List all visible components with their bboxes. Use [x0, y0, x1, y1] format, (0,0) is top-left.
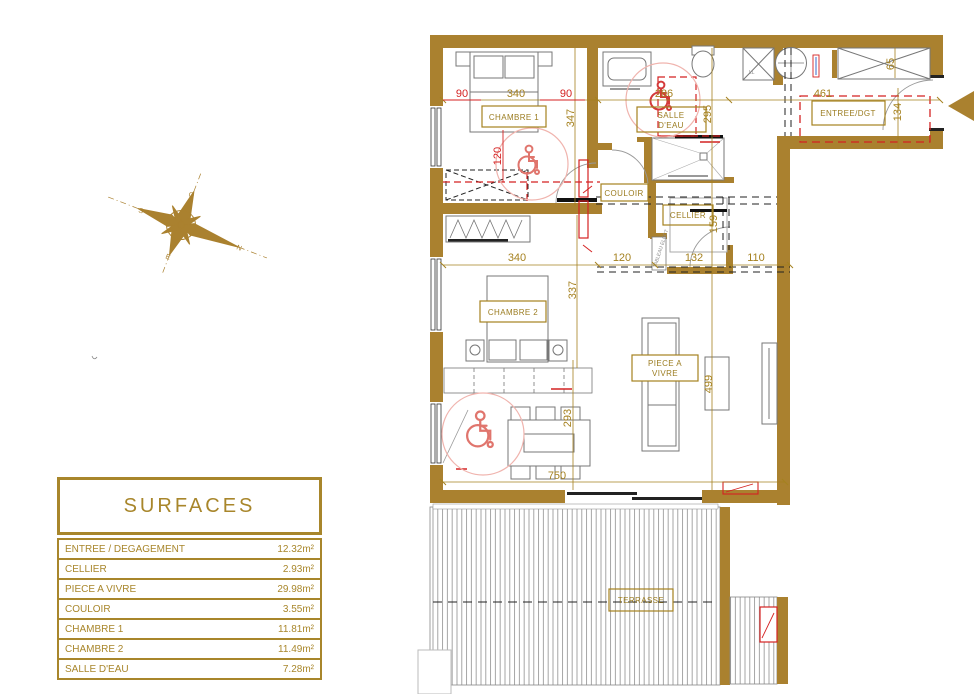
svg-text:COULOIR: COULOIR	[604, 189, 643, 198]
svg-text:461: 461	[814, 88, 832, 100]
svg-text:D'EAU: D'EAU	[658, 121, 684, 130]
compass-rose-icon: N S O E	[90, 145, 287, 307]
surfaces-table: SURFACES ENTREE / DEGAGEMENT 12.32m² CEL…	[57, 477, 322, 680]
table-row: SALLE D'EAU 7.28m²	[57, 658, 322, 680]
floor-plan-page: TERRASSE	[0, 0, 980, 694]
svg-text:90: 90	[456, 88, 468, 100]
label-chambre1: CHAMBRE 1	[482, 106, 546, 127]
svg-text:159: 159	[708, 215, 720, 233]
stray-mark	[92, 356, 97, 359]
svg-text:CHAMBRE 1: CHAMBRE 1	[489, 113, 539, 122]
svg-text:CELLIER: CELLIER	[670, 211, 706, 220]
table-row: PIECE A VIVRE 29.98m²	[57, 578, 322, 600]
svg-text:110: 110	[747, 252, 765, 264]
svg-text:340: 340	[507, 88, 525, 100]
surfaces-title: SURFACES	[57, 477, 322, 535]
table-row: CHAMBRE 2 11.49m²	[57, 638, 322, 660]
table-row: CHAMBRE 1 11.81m²	[57, 618, 322, 640]
svg-text:N: N	[235, 244, 242, 252]
svg-text:337: 337	[567, 281, 579, 299]
table-row: CELLIER 2.93m²	[57, 558, 322, 580]
label-chambre2: CHAMBRE 2	[480, 301, 546, 322]
svg-text:347: 347	[565, 109, 577, 127]
svg-text:ENTREE/DGT: ENTREE/DGT	[820, 109, 876, 118]
svg-text:PIECE A: PIECE A	[648, 359, 682, 368]
entrance-arrow-icon	[948, 91, 974, 121]
svg-text:65: 65	[885, 58, 897, 70]
svg-text:CHAMBRE 2: CHAMBRE 2	[488, 308, 538, 317]
table-row: COULOIR 3.55m²	[57, 598, 322, 620]
svg-text:340: 340	[508, 252, 526, 264]
svg-text:750: 750	[548, 470, 566, 482]
washer-label: LL	[749, 70, 755, 76]
svg-text:SALLE: SALLE	[658, 111, 685, 120]
svg-text:132: 132	[685, 252, 703, 264]
svg-text:120: 120	[492, 147, 504, 165]
svg-text:VIVRE: VIVRE	[652, 369, 678, 378]
svg-text:286: 286	[655, 88, 673, 100]
svg-text:90: 90	[560, 88, 572, 100]
terrace: TERRASSE	[418, 504, 788, 694]
svg-text:499: 499	[703, 375, 715, 393]
svg-text:TERRASSE: TERRASSE	[618, 596, 664, 605]
label-entree: ENTREE/DGT	[812, 101, 885, 125]
svg-text:293: 293	[562, 409, 574, 427]
svg-text:E: E	[164, 253, 171, 261]
svg-text:134: 134	[892, 103, 904, 121]
table-row: ENTREE / DEGAGEMENT 12.32m²	[57, 538, 322, 560]
sliding-door	[565, 491, 702, 502]
label-couloir: COULOIR	[601, 184, 648, 201]
label-piece-a-vivre: PIECE A VIVRE	[632, 355, 698, 381]
svg-text:120: 120	[613, 252, 631, 264]
